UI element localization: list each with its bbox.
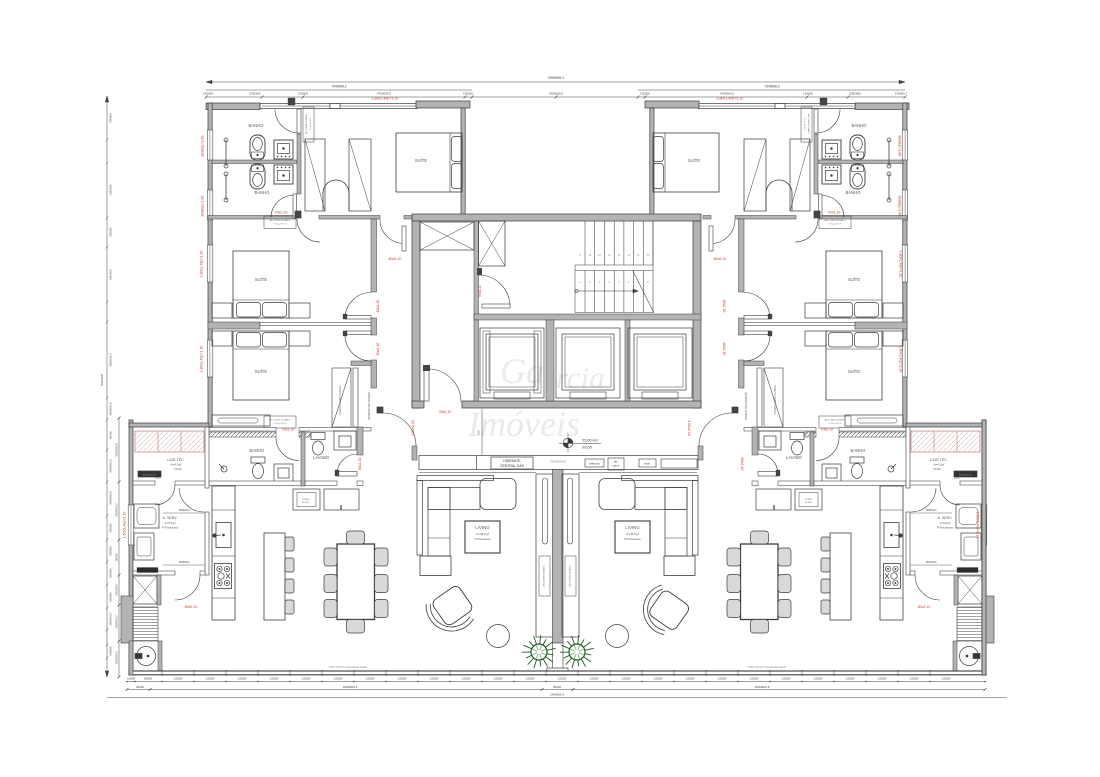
svg-text:Pi hág. BTU S: Pi hág. BTU S — [829, 224, 842, 226]
svg-text:PREENCHIMENTO/50cm: PREENCHIMENTO/50cm — [773, 385, 777, 415]
svg-text:1,50x1,40p=1,10: 1,50x1,40p=1,10 — [976, 512, 980, 539]
svg-text:70x2,10: 70x2,10 — [282, 428, 295, 432]
svg-text:SUÍTE: SUÍTE — [848, 277, 861, 282]
svg-text:1400000,2: 1400000,2 — [115, 615, 119, 629]
svg-text:2400000,3: 2400000,3 — [109, 459, 113, 473]
svg-text:1/12900: 1/12900 — [462, 678, 471, 681]
svg-text:±0,02: ±0,02 — [933, 467, 941, 471]
svg-text:LAVABO: LAVABO — [313, 455, 330, 460]
svg-text:1/12900: 1/12900 — [718, 678, 727, 681]
svg-text:A=5,5㎡: A=5,5㎡ — [940, 520, 951, 525]
svg-text:LAJE TÉC.: LAJE TÉC. — [930, 457, 948, 462]
svg-text:80x80p=1,60: 80x80p=1,60 — [898, 136, 902, 157]
svg-text:7949998,3: 7949998,3 — [764, 85, 779, 89]
svg-text:PISO PÁTIO: Porcelanato ripado: PISO PÁTIO: Porcelanato ripado — [748, 665, 786, 669]
svg-text:1/12900: 1/12900 — [942, 678, 951, 681]
svg-text:1,80x1,40p=1,10: 1,80x1,40p=1,10 — [899, 346, 903, 373]
svg-text:800000: 800000 — [144, 678, 153, 681]
svg-text:10000000: 10000000 — [100, 373, 104, 386]
svg-text:A=45,5㎡: A=45,5㎡ — [476, 531, 489, 536]
svg-text:PISO PÁTIO: Porcelanato ripado: PISO PÁTIO: Porcelanato ripado — [329, 665, 367, 669]
svg-text:1,00x2,10: 1,00x2,10 — [411, 420, 415, 436]
svg-text:VP 1: VP 1 — [155, 477, 161, 480]
svg-text:4700000,2: 4700000,2 — [720, 92, 735, 96]
svg-text:AR CONDICIONADO: AR CONDICIONADO — [807, 114, 810, 134]
svg-text:1000000,2: 1000000,2 — [115, 651, 119, 665]
svg-text:70x2,10: 70x2,10 — [275, 211, 288, 215]
svg-text:90x2,10: 90x2,10 — [478, 285, 482, 297]
svg-text:A=4,5㎡: A=4,5㎡ — [934, 462, 945, 467]
svg-text:1/12900: 1/12900 — [814, 678, 823, 681]
svg-text:80x2,10: 80x2,10 — [376, 343, 380, 356]
svg-text:BANHO: BANHO — [851, 448, 867, 453]
svg-text:1,80x1,40p=1,10: 1,80x1,40p=1,10 — [200, 346, 204, 373]
svg-text:LAJE TÉC.: LAJE TÉC. — [167, 457, 185, 462]
svg-text:AR CONDICIONADO: AR CONDICIONADO — [825, 419, 846, 422]
svg-text:1/12900: 1/12900 — [846, 678, 855, 681]
svg-text:80x2,10: 80x2,10 — [358, 458, 362, 471]
svg-text:2600004,3: 2600004,3 — [109, 353, 113, 367]
svg-text:130000: 130000 — [640, 92, 650, 96]
svg-text:80x2,10: 80x2,10 — [389, 257, 402, 261]
svg-text:600000: 600000 — [109, 646, 113, 656]
svg-text:telecom: telecom — [589, 462, 600, 466]
svg-text:130000: 130000 — [463, 92, 473, 96]
svg-text:25,60 AO: 25,60 AO — [582, 439, 598, 443]
svg-text:80x2,10: 80x2,10 — [722, 300, 726, 313]
svg-text:2300000: 2300000 — [849, 92, 861, 96]
svg-text:1/12900: 1/12900 — [558, 678, 567, 681]
svg-text:1/12900: 1/12900 — [750, 678, 759, 681]
svg-text:Pi hág. BTU S: Pi hág. BTU S — [274, 224, 287, 226]
svg-text:130000: 130000 — [803, 92, 813, 96]
svg-text:1/12900: 1/12900 — [654, 678, 663, 681]
svg-text:Pi Porcelanato: Pi Porcelanato — [162, 527, 179, 530]
svg-text:1420000: 1420000 — [109, 269, 113, 280]
svg-text:1,80x1,40p=1,10: 1,80x1,40p=1,10 — [899, 251, 903, 278]
svg-text:1/12900: 1/12900 — [366, 678, 375, 681]
svg-text:2400000,8: 2400000,8 — [115, 443, 119, 457]
svg-text:1/12900: 1/12900 — [878, 678, 887, 681]
svg-text:1/12900: 1/12900 — [494, 678, 503, 681]
svg-text:ELETR.: ELETR. — [302, 502, 310, 504]
svg-text:LIVING: LIVING — [475, 525, 490, 530]
svg-text:1/12900: 1/12900 — [622, 678, 631, 681]
svg-text:FORNO: FORNO — [302, 499, 310, 501]
svg-text:ELETR.: ELETR. — [805, 502, 813, 504]
svg-text:1/12900: 1/12900 — [398, 678, 407, 681]
svg-text:2400000,8: 2400000,8 — [109, 491, 113, 505]
svg-text:Pi hág. BTU S: Pi hág. BTU S — [274, 423, 287, 425]
svg-text:AR CONDICIONADO: AR CONDICIONADO — [569, 565, 572, 586]
svg-text:VP 1: VP 1 — [954, 477, 960, 480]
svg-text:80x80p=1,60: 80x80p=1,60 — [201, 196, 205, 217]
svg-text:130000: 130000 — [298, 92, 308, 96]
svg-text:130000,7: 130000,7 — [895, 92, 908, 96]
svg-text:7949998,2: 7949998,2 — [331, 85, 346, 89]
svg-text:80x2,10: 80x2,10 — [376, 300, 380, 313]
svg-text:3000000,2: 3000000,2 — [549, 92, 564, 96]
svg-text:AR CONDICIONADO: AR CONDICIONADO — [305, 114, 308, 134]
svg-text:1/12900: 1/12900 — [238, 678, 247, 681]
svg-text:SUÍTE: SUÍTE — [255, 277, 268, 282]
svg-text:2909998,2: 2909998,2 — [548, 76, 564, 80]
svg-text:±0,02: ±0,02 — [174, 467, 182, 471]
svg-text:1/12900: 1/12900 — [686, 678, 695, 681]
svg-text:800000: 800000 — [109, 523, 113, 533]
svg-text:PRUMADAS: PRUMADAS — [550, 460, 566, 464]
svg-text:4700000,2: 4700000,2 — [377, 92, 392, 96]
svg-text:FORNO: FORNO — [805, 499, 813, 501]
svg-text:2700000: 2700000 — [249, 92, 261, 96]
svg-text:AR CONDICIONADO: AR CONDICIONADO — [270, 419, 291, 422]
svg-text:PREENCHIMENTO/50cm: PREENCHIMENTO/50cm — [338, 385, 342, 415]
svg-text:A. SERV.: A. SERV. — [163, 516, 178, 520]
svg-text:AR CONDICIONADO: AR CONDICIONADO — [270, 219, 291, 222]
svg-text:A=45,5㎡: A=45,5㎡ — [626, 531, 639, 536]
svg-text:cond.: cond. — [613, 464, 620, 468]
svg-text:1/12900: 1/12900 — [782, 678, 791, 681]
svg-text:1000000,9: 1000000,9 — [179, 510, 191, 512]
svg-text:Pi Porcelanato: Pi Porcelanato — [624, 538, 641, 541]
svg-text:1/12900: 1/12900 — [526, 678, 535, 681]
svg-text:1/12900: 1/12900 — [334, 678, 343, 681]
svg-text:Pi hág. BTU S: Pi hág. BTU S — [829, 423, 842, 425]
svg-text:SUÍTE: SUÍTE — [255, 369, 268, 374]
svg-text:Pi Porcelanato: Pi Porcelanato — [937, 527, 954, 530]
svg-text:100000: 100000 — [127, 678, 136, 681]
svg-text:1/12900: 1/12900 — [206, 678, 215, 681]
svg-text:1/12900: 1/12900 — [270, 678, 279, 681]
svg-text:LAVABO: LAVABO — [786, 455, 803, 460]
svg-text:1/12900: 1/12900 — [302, 678, 311, 681]
svg-text:Imóveis: Imóveis — [467, 404, 580, 444]
svg-text:Pi Porcelanato: Pi Porcelanato — [474, 538, 491, 541]
svg-text:2400000,2: 2400000,2 — [115, 503, 119, 517]
svg-text:Ga: Ga — [500, 351, 544, 391]
svg-text:HIDRANTE: HIDRANTE — [503, 459, 521, 463]
svg-text:80x2,10: 80x2,10 — [185, 605, 198, 609]
svg-text:SUÍTE: SUÍTE — [848, 369, 861, 374]
svg-text:2460000,4: 2460000,4 — [550, 693, 565, 697]
svg-text:1/12900: 1/12900 — [430, 678, 439, 681]
svg-text:800000: 800000 — [109, 592, 113, 602]
svg-text:90x2,10: 90x2,10 — [439, 410, 451, 414]
svg-text:1000000,8: 1000000,8 — [179, 562, 191, 564]
svg-text:Pi hág. BTU S: Pi hág. BTU S — [803, 118, 805, 131]
svg-text:90000: 90000 — [553, 685, 561, 689]
svg-text:BANHO: BANHO — [846, 190, 862, 195]
svg-text:80x2,10: 80x2,10 — [714, 257, 727, 261]
svg-text:1500000,7: 1500000,7 — [109, 612, 113, 626]
svg-text:800000: 800000 — [109, 568, 113, 578]
svg-text:barr.: barr. — [644, 462, 650, 466]
svg-text:190: 190 — [477, 430, 481, 435]
svg-text:10090001,6: 10090001,6 — [343, 685, 358, 689]
svg-text:AR CONDICIONADO: AR CONDICIONADO — [543, 565, 546, 586]
svg-text:1,50x1,40p=1,10: 1,50x1,40p=1,10 — [123, 512, 127, 539]
svg-text:99,55: 99,55 — [582, 446, 592, 450]
svg-text:CENTRAL GÁS: CENTRAL GÁS — [500, 464, 525, 468]
svg-text:A=5,5㎡: A=5,5㎡ — [165, 520, 176, 525]
svg-text:1/12900: 1/12900 — [174, 678, 183, 681]
svg-text:A=4,5㎡: A=4,5㎡ — [171, 462, 182, 467]
svg-text:BANHO: BANHO — [852, 123, 868, 128]
svg-text:80x80p=1,60: 80x80p=1,60 — [201, 136, 205, 157]
svg-text:10090001,8: 10090001,8 — [755, 685, 770, 689]
svg-text:1/12900: 1/12900 — [910, 678, 919, 681]
svg-text:580000: 580000 — [109, 227, 113, 237]
svg-text:90000: 90000 — [136, 685, 144, 689]
svg-text:80000: 80000 — [115, 553, 119, 561]
svg-text:LIVING: LIVING — [625, 525, 640, 530]
svg-text:80x2,10: 80x2,10 — [722, 343, 726, 356]
svg-text:AR CONDICIONADO: AR CONDICIONADO — [825, 219, 846, 222]
svg-text:240000: 240000 — [109, 113, 113, 123]
svg-text:70x2,10: 70x2,10 — [828, 211, 841, 215]
svg-text:BANHO: BANHO — [249, 123, 265, 128]
svg-text:70x2,10: 70x2,10 — [821, 428, 834, 432]
svg-text:1/12900: 1/12900 — [590, 678, 599, 681]
svg-text:80x80p=1,60: 80x80p=1,60 — [898, 196, 902, 217]
svg-text:SUÍTE: SUÍTE — [415, 158, 428, 163]
svg-text:1,80x1,40p=1,10: 1,80x1,40p=1,10 — [200, 251, 204, 278]
svg-text:AQUECEDOR: AQUECEDOR — [959, 474, 972, 477]
svg-text:80x2,10: 80x2,10 — [740, 458, 744, 471]
svg-text:BANHO: BANHO — [255, 190, 271, 195]
svg-text:QUADRO DE FORÇA: QUADRO DE FORÇA — [744, 392, 748, 420]
svg-text:500000: 500000 — [109, 546, 113, 556]
svg-text:80x2,10: 80x2,10 — [918, 605, 931, 609]
svg-text:Pi hág. BTU S: Pi hág. BTU S — [310, 117, 312, 130]
svg-text:1,00x2,10: 1,00x2,10 — [687, 420, 691, 436]
svg-text:1000000,9: 1000000,9 — [926, 510, 938, 512]
svg-text:80000: 80000 — [109, 431, 113, 439]
svg-text:1420000: 1420000 — [109, 184, 113, 195]
svg-text:A. SERV.: A. SERV. — [938, 516, 953, 520]
svg-text:1000000,8: 1000000,8 — [926, 562, 938, 564]
svg-text:130000: 130000 — [203, 92, 213, 96]
svg-text:1400000,8: 1400000,8 — [109, 402, 113, 416]
svg-text:QUADRO DE FORÇA: QUADRO DE FORÇA — [367, 392, 371, 420]
svg-text:3000000: 3000000 — [115, 584, 119, 595]
svg-text:SUÍTE: SUÍTE — [688, 158, 701, 163]
svg-text:BANHO: BANHO — [250, 448, 266, 453]
